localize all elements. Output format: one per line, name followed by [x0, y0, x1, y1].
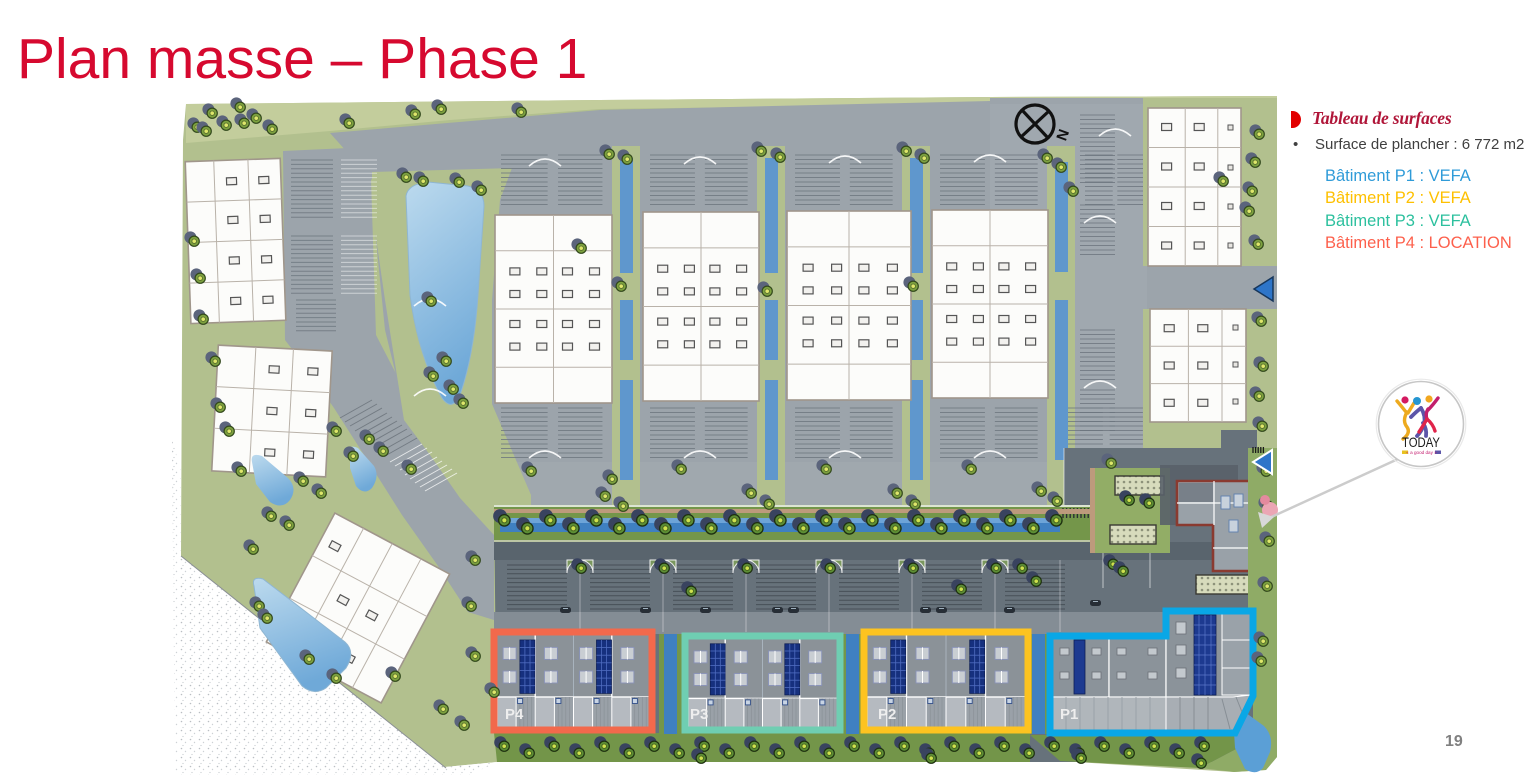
svg-text:TODAY: TODAY — [1402, 435, 1441, 450]
svg-text:P1: P1 — [1060, 706, 1078, 723]
svg-text:P2: P2 — [878, 706, 896, 723]
svg-text:« a good day »: « a good day » — [1406, 450, 1437, 455]
svg-text:P3: P3 — [690, 706, 708, 723]
svg-text:P4: P4 — [505, 706, 524, 723]
